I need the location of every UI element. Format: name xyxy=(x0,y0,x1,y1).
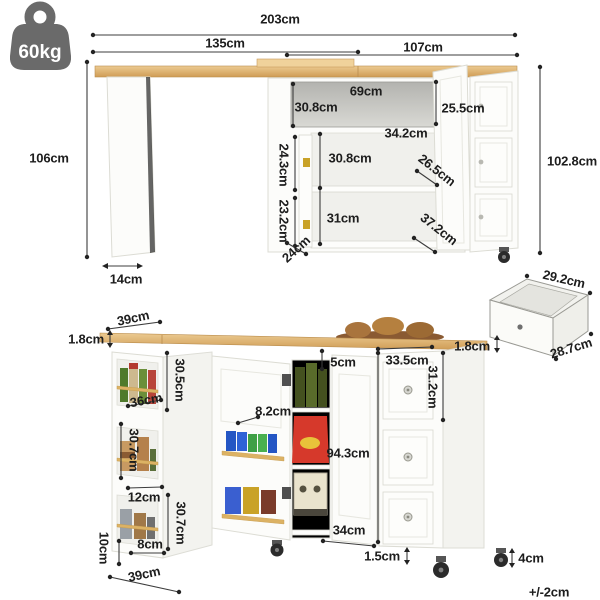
dim-cabinet-height: 102.8cm xyxy=(547,154,597,169)
hinge-icon xyxy=(303,158,310,167)
dim-overall-height: 106cm xyxy=(29,151,68,166)
dim-bottom-clearance: 1.5cm xyxy=(364,549,400,564)
hinge-icon xyxy=(303,220,310,229)
dim-side-rail-gap: 8cm xyxy=(137,537,162,552)
dim-niche-height-left: 30.8cm xyxy=(295,100,338,115)
dim-left-section-width: 135cm xyxy=(205,36,244,51)
dim-side-upper-height: 30.5cm xyxy=(173,359,188,402)
dim-lower-door-depth: 23.2cm xyxy=(277,200,292,243)
hinge-icon xyxy=(282,487,291,499)
dim-side-middle-height: 30.7cm xyxy=(127,429,142,472)
top-view-left-door-edge xyxy=(299,135,312,247)
dim-door-width: 34cm xyxy=(333,523,365,538)
dim-leg-depth: 14cm xyxy=(110,272,142,287)
dim-niche-width: 69cm xyxy=(350,84,382,99)
small-appliance xyxy=(294,473,327,515)
dim-drawer-front-width: 33.5cm xyxy=(386,353,429,368)
caster-wheel-icon xyxy=(494,548,508,567)
caster-wheel-icon xyxy=(433,556,449,578)
caster-wheel-icon xyxy=(498,247,510,263)
dim-body-height: 94.3cm xyxy=(327,446,370,461)
dim-upper-shelf-height: 30.8cm xyxy=(329,151,372,166)
dim-door-rack-depth: 8.2cm xyxy=(255,404,291,419)
folded-view-cabinet-interior xyxy=(292,360,330,538)
top-view-folded-leaf xyxy=(257,59,354,67)
drawer-knob-icon xyxy=(517,324,522,329)
top-view-shelf-board xyxy=(311,186,437,192)
dim-upper-door-depth: 24.3cm xyxy=(277,144,292,187)
dim-side-lower-opening: 12cm xyxy=(128,490,160,505)
folded-view-side-panel xyxy=(443,343,484,548)
dim-side-lower-height: 30.7cm xyxy=(174,502,189,545)
folded-view-open-door xyxy=(212,356,291,540)
diagram-artwork: 60kg xyxy=(0,0,600,600)
dim-total-width: 203cm xyxy=(260,12,299,27)
dim-caster-height: 4cm xyxy=(518,551,543,566)
dim-top-clearance: 5cm xyxy=(330,355,355,370)
dim-lower-shelf-height: 31cm xyxy=(327,211,359,226)
dim-counter-thickness-left: 1.8cm xyxy=(68,332,104,347)
dim-niche-height-right: 25.5cm xyxy=(442,101,485,116)
dim-niche-depth: 34.2cm xyxy=(385,126,428,141)
tolerance-note: +/-2cm xyxy=(529,585,569,600)
weight-badge-icon: 60kg xyxy=(10,6,71,70)
hinge-icon xyxy=(282,374,291,386)
dim-base-height: 10cm xyxy=(97,532,112,564)
dim-right-section-width: 107cm xyxy=(403,40,442,55)
caster-wheel-icon xyxy=(271,540,284,557)
dim-counter-thickness-right: 1.8cm xyxy=(454,339,490,354)
weight-badge-label: 60kg xyxy=(18,42,61,63)
dim-drawer-front-height: 31.2cm xyxy=(426,366,441,409)
product-dimension-diagram: 60kg xyxy=(0,0,600,600)
